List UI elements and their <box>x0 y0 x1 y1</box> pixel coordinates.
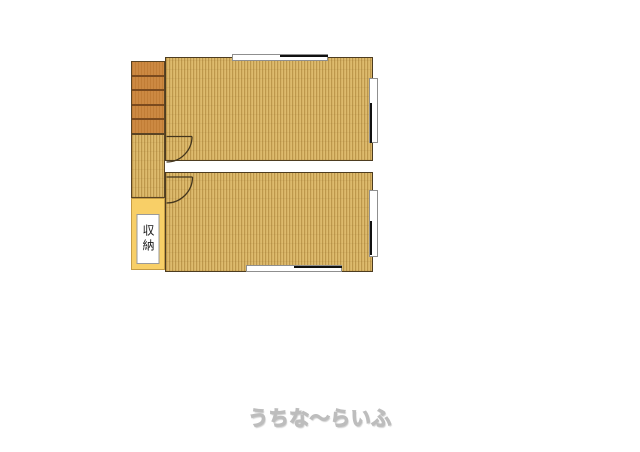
stair-step <box>132 118 164 133</box>
window-top-wall <box>232 54 328 61</box>
window-sash <box>370 221 372 255</box>
site-watermark: うちな～らいふ <box>0 402 640 431</box>
stair-step <box>132 75 164 90</box>
upper-room <box>165 57 373 161</box>
window-right-wall-lower <box>369 190 378 257</box>
staircase <box>131 61 165 134</box>
window-sash <box>370 103 372 143</box>
hallway <box>131 134 165 198</box>
window-sash <box>280 55 328 57</box>
storage-area: 収納 <box>131 198 165 270</box>
stair-step <box>132 104 164 119</box>
storage-label: 収納 <box>142 224 154 254</box>
window-sash <box>294 266 342 268</box>
window-bottom-wall <box>246 265 342 272</box>
stair-step <box>132 89 164 104</box>
lower-room <box>165 172 373 272</box>
window-right-wall-upper <box>369 78 378 143</box>
stair-step <box>132 62 164 75</box>
floor-plan-page: 収納 うちな～らいふ <box>0 0 640 452</box>
storage-label-box: 収納 <box>137 214 160 264</box>
